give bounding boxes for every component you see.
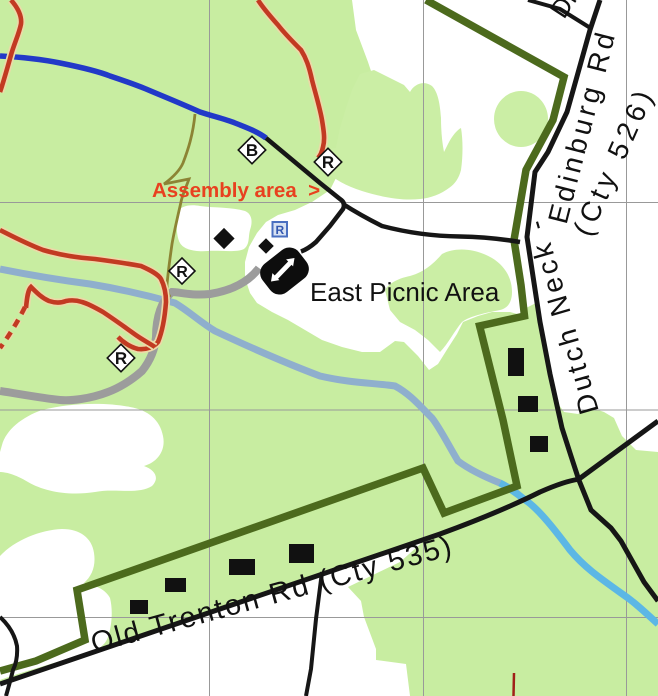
svg-text:R: R: [275, 223, 284, 237]
svg-text:R: R: [115, 349, 127, 368]
svg-text:B: B: [246, 141, 258, 160]
svg-text:East Picnic Area: East Picnic Area: [310, 277, 500, 307]
svg-text:Assembly area >: Assembly area >: [152, 179, 320, 202]
svg-text:R: R: [176, 264, 188, 281]
svg-text:R: R: [322, 153, 334, 172]
